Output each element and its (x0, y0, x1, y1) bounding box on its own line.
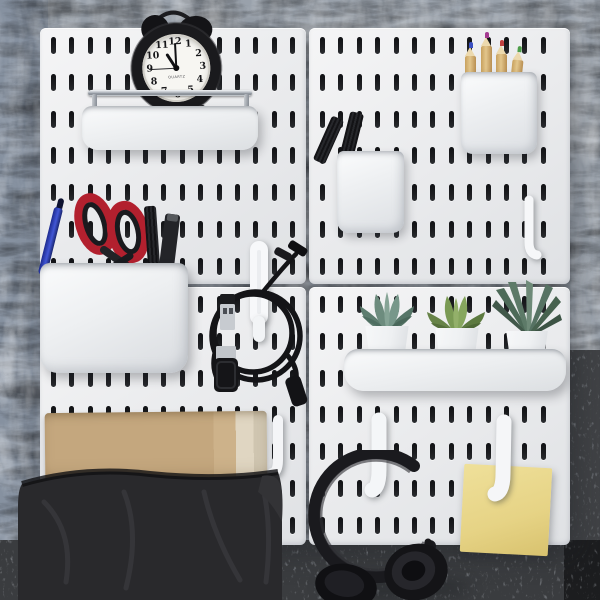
peg-slot (375, 74, 380, 91)
usb-connector-small (220, 294, 235, 330)
peg-slot (272, 37, 277, 54)
peg-slot (449, 111, 454, 128)
peg-slot (430, 221, 435, 238)
peg-slot (290, 443, 295, 460)
peg-slot (449, 37, 454, 54)
peg-slot (412, 74, 417, 91)
peg-slot (51, 111, 56, 128)
peg-slot (320, 221, 325, 238)
marker-cup (337, 151, 404, 233)
clock-center-pin (173, 65, 179, 71)
peg-slot (290, 37, 295, 54)
clock-numeral: 10 (146, 51, 160, 61)
peg-slot (253, 184, 258, 201)
peg-slot (253, 37, 258, 54)
peg-slot (272, 221, 277, 238)
peg-slot (69, 37, 74, 54)
peg-slot (412, 37, 417, 54)
peg-slot (180, 370, 185, 387)
peg-slot (320, 111, 325, 128)
peg-slot (290, 111, 295, 128)
peg-slot (235, 37, 240, 54)
peg-slot (88, 37, 93, 54)
peg-slot (467, 443, 472, 460)
peg-slot (541, 443, 546, 460)
pencil-cup (461, 72, 537, 154)
peg-slot (541, 147, 546, 164)
peg-slot (430, 37, 435, 54)
peg-slot (51, 37, 56, 54)
peg-slot (394, 258, 399, 275)
peg-slot (290, 480, 295, 497)
peg-slot (504, 221, 509, 238)
peg-slot (375, 37, 380, 54)
peg-slot (51, 184, 56, 201)
storage-bin (40, 263, 188, 373)
peg-slot (272, 184, 277, 201)
peg-slot (51, 74, 56, 91)
peg-slot (106, 74, 111, 91)
peg-slot (522, 258, 527, 275)
peg-slot (357, 74, 362, 91)
peg-slot (449, 74, 454, 91)
clock-numeral: 11 (155, 41, 169, 51)
peg-slot (69, 147, 74, 164)
peg-slot (412, 184, 417, 201)
clock-numeral: 12 (168, 36, 182, 46)
peg-slot (541, 37, 546, 54)
peg-slot (253, 74, 258, 91)
headphones (298, 450, 454, 600)
peg-slot (467, 221, 472, 238)
clock-numeral: 3 (199, 62, 206, 72)
peg-slot (253, 147, 258, 164)
peg-slot (394, 37, 399, 54)
peg-slot (504, 258, 509, 275)
peg-slot (51, 147, 56, 164)
peg-slot (290, 184, 295, 201)
peg-slot (235, 74, 240, 91)
peg-slot (541, 406, 546, 423)
peg-slot (217, 221, 222, 238)
alarm-clock: QUARTZ 121234567891011 (125, 2, 227, 123)
peg-slot (253, 221, 258, 238)
peg-slot (467, 184, 472, 201)
peg-slot (412, 258, 417, 275)
peg-slot (290, 517, 295, 534)
peg-slot (290, 221, 295, 238)
peg-slot (430, 147, 435, 164)
note-hook (488, 414, 518, 500)
peg-slot (541, 258, 546, 275)
headphone-earcup-left (312, 559, 381, 600)
peg-slot (394, 111, 399, 128)
peg-slot (449, 406, 454, 423)
peg-slot (357, 37, 362, 54)
peg-slot (449, 221, 454, 238)
peg-slot (290, 74, 295, 91)
headphone-earcup-right (377, 535, 454, 600)
peg-slot (290, 147, 295, 164)
peg-slot (430, 111, 435, 128)
peg-slot (357, 406, 362, 423)
peg-slot (235, 221, 240, 238)
peg-slot (375, 111, 380, 128)
peg-slot (412, 147, 417, 164)
peg-slot (449, 147, 454, 164)
peg-slot (198, 221, 203, 238)
peg-slot (486, 258, 491, 275)
clock-numeral: 4 (196, 75, 203, 85)
peg-slot (320, 74, 325, 91)
peg-slot (412, 221, 417, 238)
peg-slot (430, 258, 435, 275)
peg-slot (106, 37, 111, 54)
peg-slot (338, 74, 343, 91)
peg-slot (338, 406, 343, 423)
peg-slot (449, 184, 454, 201)
cable-clip (250, 314, 268, 344)
peg-slot (198, 184, 203, 201)
peg-slot (504, 184, 509, 201)
peg-slot (320, 184, 325, 201)
fabric-bag (14, 462, 288, 600)
clock-numeral: 1 (185, 39, 192, 49)
peg-slot (486, 221, 491, 238)
peg-slot (430, 406, 435, 423)
peg-slot (522, 443, 527, 460)
peg-slot (430, 184, 435, 201)
cable-plug (284, 374, 308, 407)
peg-slot (180, 221, 185, 238)
peg-slot (338, 333, 343, 350)
peg-slot (375, 258, 380, 275)
peg-slot (486, 184, 491, 201)
peg-slot (272, 74, 277, 91)
peg-slot (180, 184, 185, 201)
peg-slot (235, 184, 240, 201)
clock-numeral: 9 (146, 64, 153, 74)
plant-shelf (344, 349, 566, 391)
succulent-aloe (490, 280, 564, 338)
right-panel-hook (518, 194, 542, 260)
peg-slot (320, 37, 325, 54)
usb-connector-large (214, 346, 238, 392)
peg-slot (69, 111, 74, 128)
peg-slot (338, 37, 343, 54)
peg-slot (394, 406, 399, 423)
peg-slot (217, 184, 222, 201)
peg-slot (357, 258, 362, 275)
peg-slot (88, 74, 93, 91)
peg-slot (467, 406, 472, 423)
peg-slot (338, 370, 343, 387)
peg-slot (541, 111, 546, 128)
peg-slot (522, 406, 527, 423)
peg-slot (467, 258, 472, 275)
clock-brand: QUARTZ (168, 74, 186, 79)
peg-slot (69, 74, 74, 91)
clock-numeral: 2 (195, 49, 202, 59)
peg-slot (88, 147, 93, 164)
clock-numeral: 8 (151, 78, 158, 88)
peg-slot (272, 111, 277, 128)
peg-slot (412, 406, 417, 423)
peg-slot (338, 258, 343, 275)
peg-slot (394, 74, 399, 91)
peg-slot (541, 74, 546, 91)
peg-slot (272, 147, 277, 164)
peg-slot (412, 111, 417, 128)
peg-slot (449, 258, 454, 275)
shelf-guard-rail (88, 90, 252, 96)
wall-shelf (82, 106, 258, 150)
peg-slot (430, 74, 435, 91)
peg-slot (338, 296, 343, 313)
product-photo: QUARTZ 121234567891011 (0, 0, 600, 600)
